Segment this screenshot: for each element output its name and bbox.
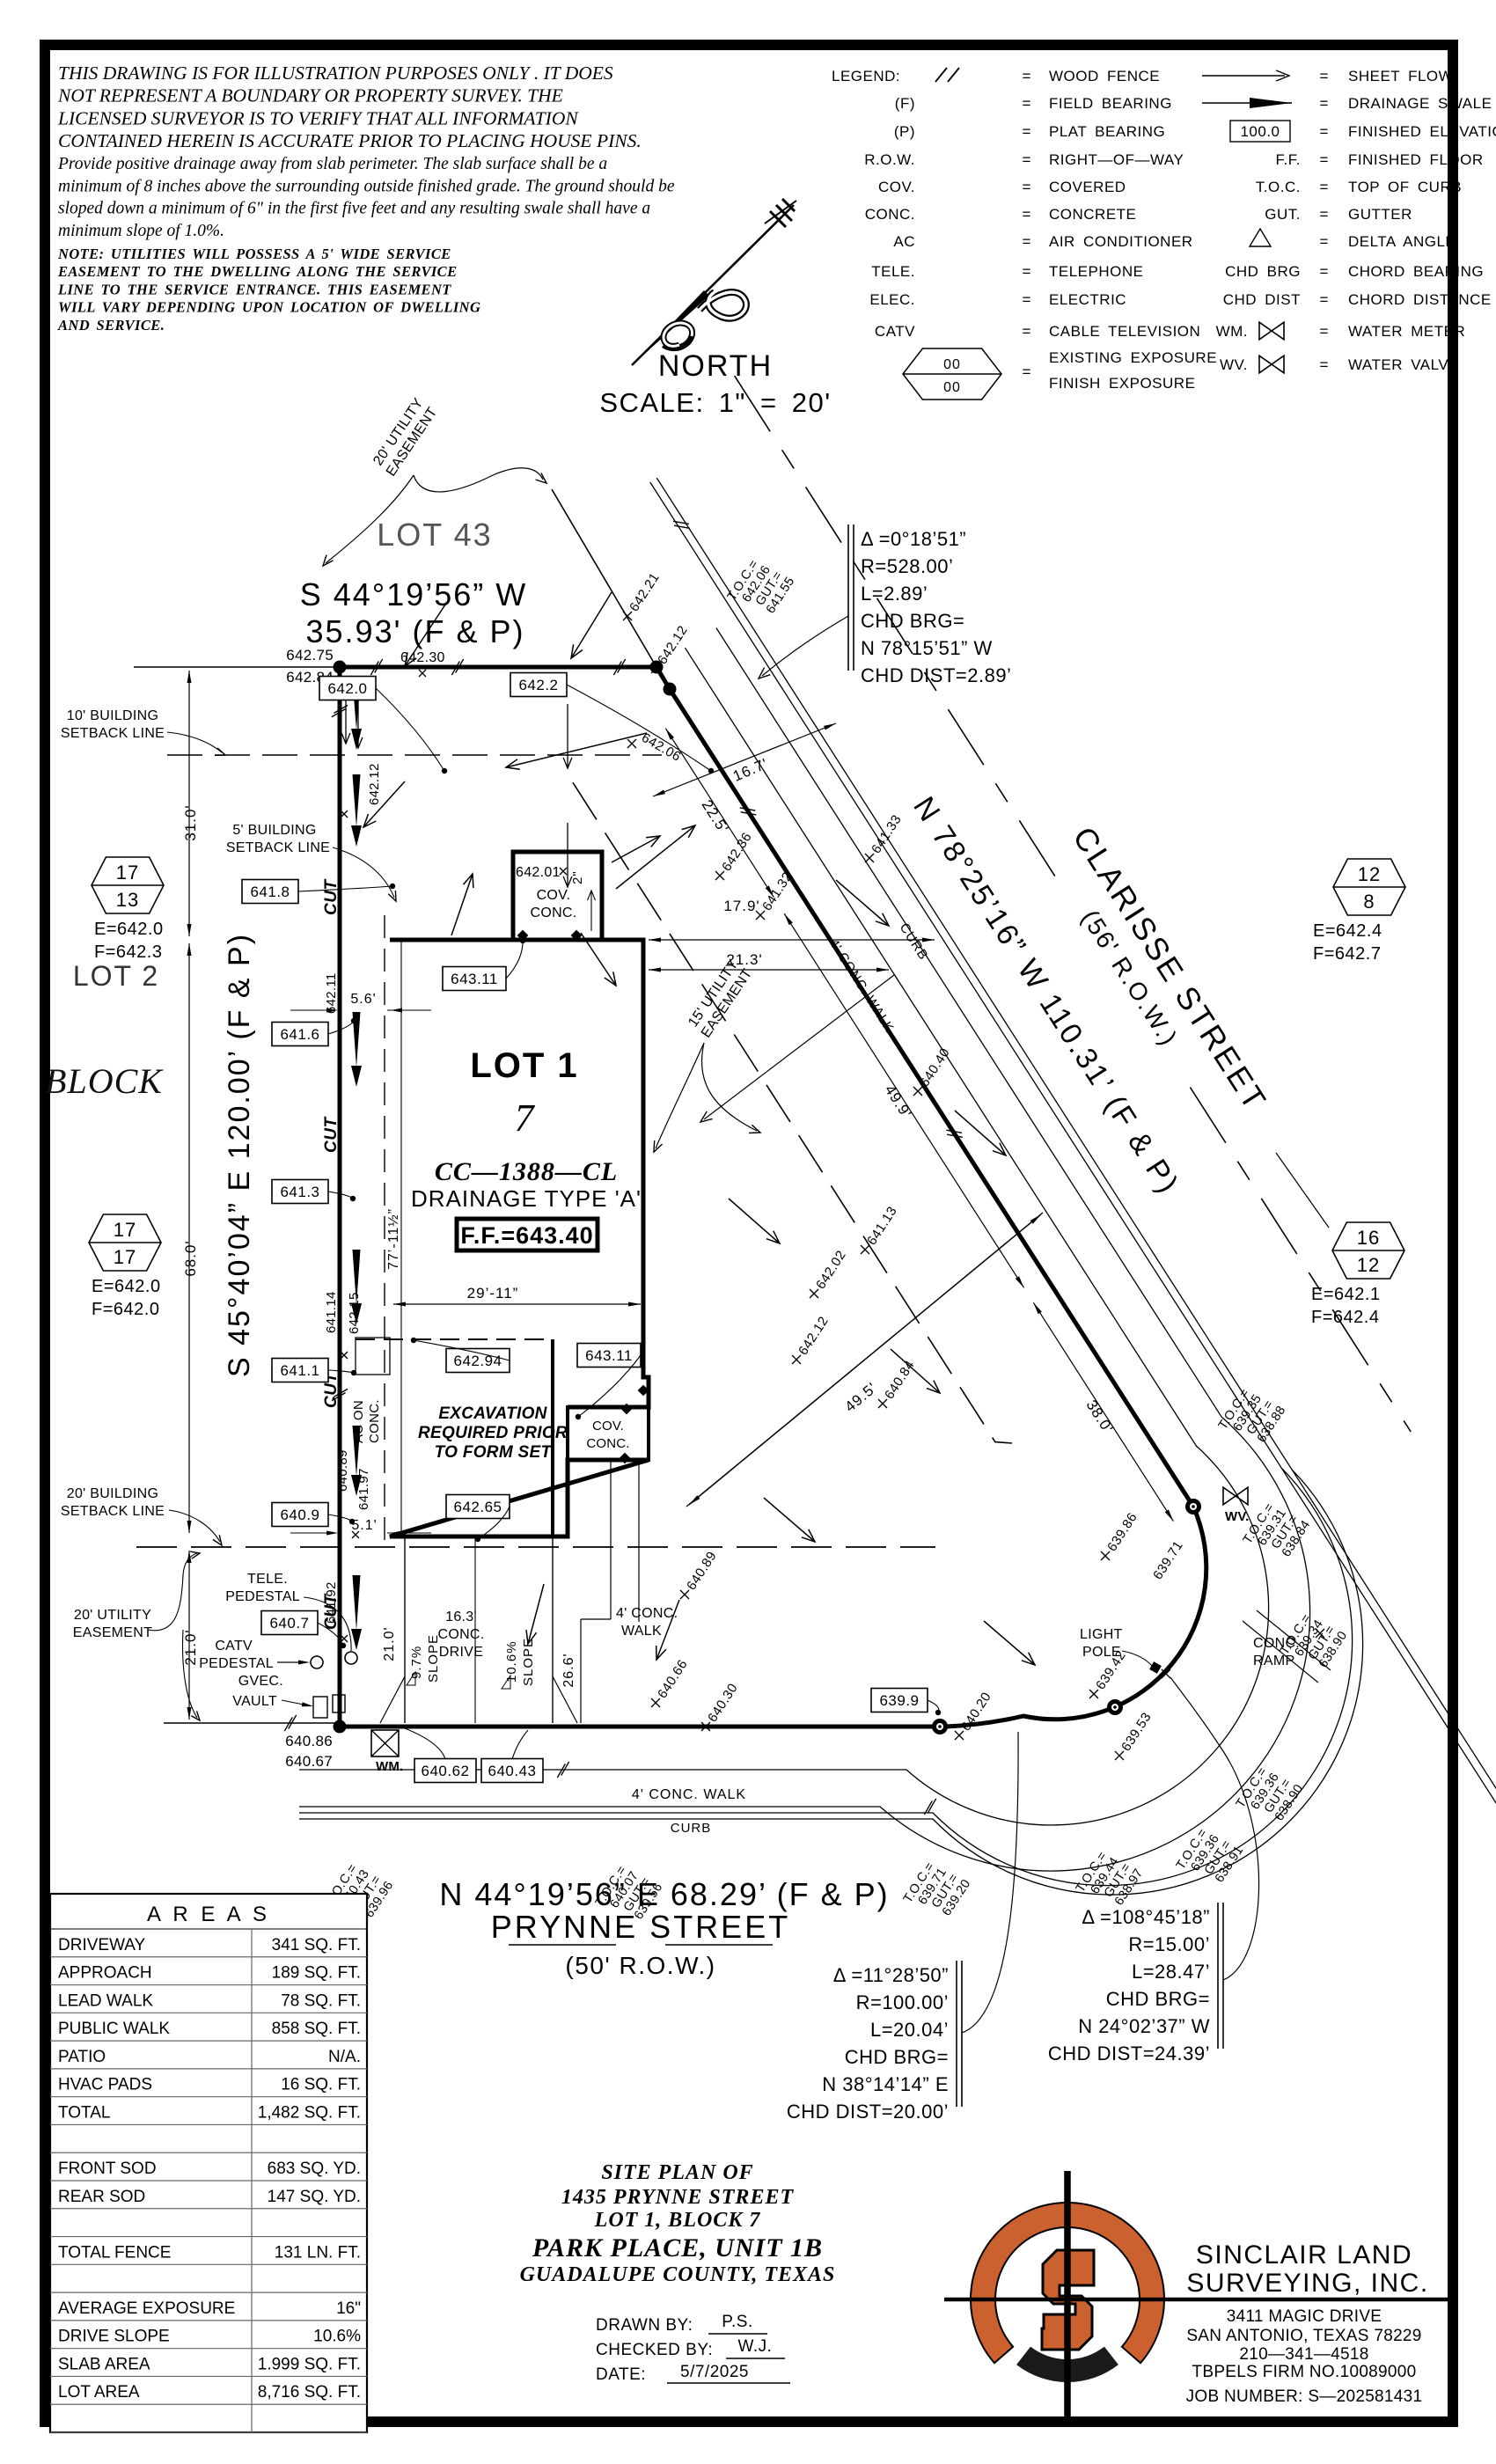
svg-text:7: 7 xyxy=(515,1096,536,1140)
svg-text:5.1': 5.1' xyxy=(351,1518,377,1533)
svg-text:78 SQ. FT.: 78 SQ. FT. xyxy=(281,1991,361,2010)
svg-text:E=642.1: E=642.1 xyxy=(1311,1285,1381,1304)
svg-text:CABLE TELEVISION: CABLE TELEVISION xyxy=(1049,323,1200,340)
svg-text:SLAB AREA: SLAB AREA xyxy=(58,2355,150,2373)
svg-text:=: = xyxy=(1023,95,1032,112)
svg-text:TELE.: TELE. xyxy=(871,263,915,280)
svg-text:PARK PLACE, UNIT 1B: PARK PLACE, UNIT 1B xyxy=(532,2233,823,2262)
svg-text:00: 00 xyxy=(943,357,961,372)
svg-text:LINE TO THE SERVICE ENTRANCE.: LINE TO THE SERVICE ENTRANCE. THIS EASEM… xyxy=(57,281,451,297)
svg-text:WV.: WV. xyxy=(1225,1509,1250,1524)
svg-text:640.43: 640.43 xyxy=(488,1763,537,1779)
svg-text:W.J.: W.J. xyxy=(738,2337,773,2356)
svg-text:GUADALUPE COUNTY, TEXAS: GUADALUPE COUNTY, TEXAS xyxy=(520,2263,836,2286)
svg-text:LICENSED SURVEYOR IS TO VERIFY: LICENSED SURVEYOR IS TO VERIFY THAT ALL … xyxy=(57,107,579,128)
svg-text:AC: AC xyxy=(893,233,915,250)
svg-text:NOTE: UTILITIES WILL POSSESS A: NOTE: UTILITIES WILL POSSESS A 5' WIDE S… xyxy=(57,246,451,262)
svg-text:642.75: 642.75 xyxy=(286,647,334,664)
svg-text:N 78°15’51” W: N 78°15’51” W xyxy=(861,637,993,659)
svg-text:SLOPE: SLOPE xyxy=(521,1638,536,1686)
svg-text:16": 16" xyxy=(336,2299,361,2318)
svg-text:641.8: 641.8 xyxy=(250,884,290,900)
svg-text:DRIVE SLOPE: DRIVE SLOPE xyxy=(58,2328,170,2346)
svg-text:642.2: 642.2 xyxy=(518,677,558,693)
svg-text:GUTTER: GUTTER xyxy=(1348,206,1412,223)
svg-text:COVERED: COVERED xyxy=(1049,179,1126,195)
svg-text:TELE.: TELE. xyxy=(247,1572,288,1587)
svg-text:CC—1388—CL: CC—1388—CL xyxy=(435,1157,618,1186)
svg-text:FIELD BEARING: FIELD BEARING xyxy=(1049,95,1172,112)
svg-text:COV.: COV. xyxy=(878,179,915,195)
svg-text:LIGHT: LIGHT xyxy=(1080,1627,1123,1642)
svg-text:WM.: WM. xyxy=(376,1759,403,1774)
svg-text:WV.: WV. xyxy=(1220,356,1248,373)
svg-text:CATV: CATV xyxy=(875,323,915,340)
svg-text:minimum of 8 inches above the: minimum of 8 inches above the surroundin… xyxy=(58,177,675,195)
svg-text:(50' R.O.W.): (50' R.O.W.) xyxy=(565,1952,715,1979)
svg-text:642.94: 642.94 xyxy=(454,1353,502,1369)
svg-text:REAR SOD: REAR SOD xyxy=(58,2188,145,2206)
svg-text:SCALE: 1" = 20': SCALE: 1" = 20' xyxy=(599,387,831,418)
svg-text:5/7/2025: 5/7/2025 xyxy=(680,2363,749,2381)
svg-text:A R E A S: A R E A S xyxy=(147,1903,270,1926)
svg-text:131 LN. FT.: 131 LN. FT. xyxy=(275,2243,361,2262)
svg-text:189 SQ. FT.: 189 SQ. FT. xyxy=(272,1964,361,1983)
svg-text:31.0': 31.0' xyxy=(182,804,199,840)
svg-text:29’-11”: 29’-11” xyxy=(467,1285,519,1302)
svg-text:640.62: 640.62 xyxy=(422,1763,470,1779)
svg-text:TOTAL FENCE: TOTAL FENCE xyxy=(58,2243,171,2262)
svg-text:N 44°19’56” E 68.29’ (F &: N 44°19’56” E 68.29’ (F & P) xyxy=(439,1876,889,1912)
svg-text:=: = xyxy=(1023,323,1032,340)
svg-text:E=642.4: E=642.4 xyxy=(1313,921,1382,941)
svg-text:1.999 SQ. FT.: 1.999 SQ. FT. xyxy=(258,2355,361,2373)
svg-text:R=100.00’: R=100.00’ xyxy=(856,1991,949,2013)
svg-text:2": 2" xyxy=(570,870,585,884)
svg-text:EASEMENT: EASEMENT xyxy=(73,1625,152,1640)
svg-text:12: 12 xyxy=(1358,863,1381,885)
svg-text:=: = xyxy=(1320,123,1330,140)
svg-text:COV.: COV. xyxy=(537,888,571,903)
svg-text:AIR CONDITIONER: AIR CONDITIONER xyxy=(1049,233,1193,250)
svg-text:CURB: CURB xyxy=(671,1821,712,1836)
svg-text:CHD DIST=20.00’: CHD DIST=20.00’ xyxy=(787,2101,949,2123)
svg-text:16: 16 xyxy=(1357,1227,1380,1249)
svg-text:8,716 SQ. FT.: 8,716 SQ. FT. xyxy=(258,2383,361,2402)
svg-text:642.0: 642.0 xyxy=(327,680,367,697)
svg-text:16.3': 16.3' xyxy=(445,1610,477,1624)
svg-text:9.7%: 9.7% xyxy=(409,1646,424,1679)
svg-text:10.6%: 10.6% xyxy=(313,2328,361,2346)
svg-text:SAN ANTONIO, TEXAS 78229: SAN ANTONIO, TEXAS 78229 xyxy=(1186,2327,1421,2345)
svg-text:WATER VALVE: WATER VALVE xyxy=(1348,356,1459,373)
svg-text:640.67: 640.67 xyxy=(285,1753,333,1770)
svg-text:LOT 2: LOT 2 xyxy=(73,960,159,992)
svg-text:PEDESTAL: PEDESTAL xyxy=(225,1589,300,1604)
svg-text:RAMP: RAMP xyxy=(1253,1654,1294,1668)
svg-text:641.97: 641.97 xyxy=(356,1468,371,1510)
svg-text:CONC.: CONC. xyxy=(865,206,915,223)
svg-text:CONC.: CONC. xyxy=(586,1436,629,1451)
svg-text:20' BUILDING: 20' BUILDING xyxy=(67,1486,158,1501)
svg-text:JOB NUMBER: S—202581431: JOB NUMBER: S—202581431 xyxy=(1186,2387,1423,2406)
svg-text:SHEET FLOW: SHEET FLOW xyxy=(1348,68,1453,84)
svg-text:REQUIRED PRIOR: REQUIRED PRIOR xyxy=(418,1424,568,1442)
svg-text:EASEMENT TO THE DWELLING ALONG: EASEMENT TO THE DWELLING ALONG THE SERVI… xyxy=(57,263,458,280)
svg-text:641.3: 641.3 xyxy=(280,1184,319,1200)
svg-text:CHD BRG=: CHD BRG= xyxy=(1106,1988,1210,2010)
svg-text:(F): (F) xyxy=(895,95,915,112)
svg-text:639.9: 639.9 xyxy=(879,1692,919,1709)
svg-text:CHD BRG: CHD BRG xyxy=(1225,263,1301,280)
svg-text:F=642.0: F=642.0 xyxy=(92,1300,159,1319)
svg-text:642.65: 642.65 xyxy=(454,1499,502,1515)
svg-text:LOT 1: LOT 1 xyxy=(470,1046,578,1085)
svg-text:26.6': 26.6' xyxy=(561,1653,576,1687)
svg-text:642.12: 642.12 xyxy=(367,763,382,805)
svg-text:4' CONC. WALK: 4' CONC. WALK xyxy=(632,1787,746,1802)
svg-text:AND SERVICE.: AND SERVICE. xyxy=(57,317,165,334)
svg-text:=: = xyxy=(1023,179,1032,195)
svg-text:HVAC PADS: HVAC PADS xyxy=(58,2076,152,2094)
svg-text:TELEPHONE: TELEPHONE xyxy=(1049,263,1143,280)
svg-text:1435 PRYNNE STREET: 1435 PRYNNE STREET xyxy=(561,2186,795,2209)
svg-text:SETBACK LINE: SETBACK LINE xyxy=(226,840,330,855)
svg-text:CONC.: CONC. xyxy=(367,1399,382,1443)
svg-text:L=20.04’: L=20.04’ xyxy=(870,2019,949,2041)
svg-text:CONC.: CONC. xyxy=(437,1627,484,1642)
svg-text:=: = xyxy=(1320,233,1330,250)
svg-text:NORTH: NORTH xyxy=(658,349,773,383)
svg-text:=: = xyxy=(1320,95,1330,112)
svg-text:ELEC.: ELEC. xyxy=(869,291,915,308)
svg-text:21.0': 21.0' xyxy=(382,1626,397,1661)
svg-text:=: = xyxy=(1320,151,1330,168)
svg-text:PEDESTAL: PEDESTAL xyxy=(199,1656,274,1671)
svg-text:17: 17 xyxy=(114,1219,136,1241)
svg-text:POLE: POLE xyxy=(1082,1645,1121,1660)
svg-text:CHD DIST=24.39’: CHD DIST=24.39’ xyxy=(1048,2042,1210,2064)
svg-text:CUT: CUT xyxy=(322,1117,341,1153)
svg-text:RIGHT—OF—WAY: RIGHT—OF—WAY xyxy=(1049,151,1184,168)
svg-text:PLAT BEARING: PLAT BEARING xyxy=(1049,123,1165,140)
svg-text:N/A.: N/A. xyxy=(328,2048,361,2066)
svg-text:21.0': 21.0' xyxy=(182,1629,199,1665)
svg-text:13: 13 xyxy=(116,889,139,911)
svg-text:642.11: 642.11 xyxy=(324,972,339,1014)
svg-text:EXCAVATION: EXCAVATION xyxy=(438,1404,547,1423)
svg-text:210—341—4518: 210—341—4518 xyxy=(1239,2345,1368,2364)
svg-text:CHD BRG=: CHD BRG= xyxy=(861,610,964,632)
svg-text:AVERAGE EXPOSURE: AVERAGE EXPOSURE xyxy=(58,2299,235,2318)
svg-text:F=642.4: F=642.4 xyxy=(1311,1308,1379,1327)
svg-text:5.6': 5.6' xyxy=(350,992,376,1007)
svg-text:640.7: 640.7 xyxy=(269,1615,309,1632)
svg-text:3411 MAGIC DRIVE: 3411 MAGIC DRIVE xyxy=(1227,2307,1382,2326)
svg-text:E=642.0: E=642.0 xyxy=(94,920,164,939)
svg-text:FINISHED FLOOR: FINISHED FLOOR xyxy=(1348,151,1484,168)
svg-text:NOT REPRESENT A BOUNDARY OR PR: NOT REPRESENT A BOUNDARY OR PROPERTY SUR… xyxy=(57,85,563,106)
svg-text:L=28.47’: L=28.47’ xyxy=(1132,1961,1210,1983)
svg-text:=: = xyxy=(1023,123,1032,140)
svg-text:DRAWN BY:: DRAWN BY: xyxy=(596,2316,693,2335)
svg-text:17: 17 xyxy=(116,862,139,884)
svg-text:=: = xyxy=(1023,68,1032,84)
svg-text:TO FORM SET: TO FORM SET xyxy=(435,1443,553,1462)
svg-text:LEGEND:: LEGEND: xyxy=(832,68,900,84)
svg-text:642.01: 642.01 xyxy=(516,865,561,880)
svg-text:Δ =108°45’18”: Δ =108°45’18” xyxy=(1082,1906,1210,1928)
svg-text:ELECTRIC: ELECTRIC xyxy=(1049,291,1126,308)
svg-text:APPROACH: APPROACH xyxy=(58,1964,152,1983)
svg-text:L=2.89’: L=2.89’ xyxy=(861,583,928,605)
svg-text:641.6: 641.6 xyxy=(280,1026,319,1043)
svg-text:640.86: 640.86 xyxy=(285,1733,333,1749)
svg-text:CHORD DISTANCE: CHORD DISTANCE xyxy=(1348,291,1492,308)
svg-text:R.O.W.: R.O.W. xyxy=(864,151,915,168)
svg-text:68.0': 68.0' xyxy=(182,1240,199,1276)
svg-text:LOT 43: LOT 43 xyxy=(377,517,492,553)
svg-text:00: 00 xyxy=(943,380,961,395)
svg-text:SINCLAIR LAND: SINCLAIR LAND xyxy=(1196,2240,1412,2270)
svg-text:=: = xyxy=(1320,356,1330,373)
svg-text:WOOD FENCE: WOOD FENCE xyxy=(1049,68,1160,84)
svg-text:683 SQ. YD.: 683 SQ. YD. xyxy=(268,2160,361,2178)
svg-text:TOP OF CURB: TOP OF CURB xyxy=(1348,179,1462,195)
svg-text:COV.: COV. xyxy=(592,1419,624,1434)
svg-text:=: = xyxy=(1023,233,1032,250)
svg-text:CHD DIST=2.89’: CHD DIST=2.89’ xyxy=(861,664,1011,686)
svg-text:PUBLIC WALK: PUBLIC WALK xyxy=(58,2020,170,2038)
svg-text:T.O.C.: T.O.C. xyxy=(1256,179,1301,195)
svg-text:17.9': 17.9' xyxy=(723,898,759,914)
svg-text:CHD BRG=: CHD BRG= xyxy=(845,2046,949,2068)
svg-text:WILL VARY DEPENDING UPON LOCAT: WILL VARY DEPENDING UPON LOCATION OF DWE… xyxy=(58,299,480,316)
svg-text:EXISTING EXPOSURE: EXISTING EXPOSURE xyxy=(1049,349,1217,366)
svg-text:WATER METER: WATER METER xyxy=(1348,323,1465,340)
svg-text:10.6%: 10.6% xyxy=(504,1640,519,1683)
svg-text:640.89: 640.89 xyxy=(335,1449,350,1492)
svg-text:CONCRETE: CONCRETE xyxy=(1049,206,1136,223)
svg-text:sloped down a minimum of 6" in: sloped down a minimum of 6" in the first… xyxy=(58,200,650,218)
svg-text:CONTAINED HEREIN IS ACCURATE P: CONTAINED HEREIN IS ACCURATE PRIOR TO PL… xyxy=(58,130,642,151)
svg-text:GVEC.: GVEC. xyxy=(238,1674,283,1689)
svg-text:CUT: CUT xyxy=(322,879,341,915)
svg-text:858 SQ. FT.: 858 SQ. FT. xyxy=(272,2020,361,2038)
svg-text:FINISH EXPOSURE: FINISH EXPOSURE xyxy=(1049,375,1195,392)
svg-text:641.1: 641.1 xyxy=(280,1362,319,1379)
svg-text:DRIVE: DRIVE xyxy=(439,1645,483,1660)
svg-text:640.9: 640.9 xyxy=(280,1507,319,1523)
svg-text:77’-11½”: 77’-11½” xyxy=(386,1208,401,1270)
svg-text:=: = xyxy=(1023,263,1032,280)
svg-text:DELTA ANGLE: DELTA ANGLE xyxy=(1348,233,1456,250)
svg-text:CHORD BEARING: CHORD BEARING xyxy=(1348,263,1484,280)
svg-text:(P): (P) xyxy=(894,123,915,140)
svg-text:4' CONC.: 4' CONC. xyxy=(616,1606,678,1621)
svg-text:=: = xyxy=(1320,291,1330,308)
svg-text:341 SQ. FT.: 341 SQ. FT. xyxy=(272,1936,361,1954)
svg-text:SETBACK LINE: SETBACK LINE xyxy=(61,1504,165,1519)
svg-text:F.F.: F.F. xyxy=(1276,151,1301,168)
svg-text:147 SQ. YD.: 147 SQ. YD. xyxy=(268,2188,361,2206)
svg-text:641.14: 641.14 xyxy=(324,1291,339,1333)
svg-text:E=642.0: E=642.0 xyxy=(92,1277,161,1296)
svg-text:S 45°40’04” E 120.00’ (F: S 45°40’04” E 120.00’ (F & P) xyxy=(223,933,256,1377)
svg-text:Δ =11°28’50”: Δ =11°28’50” xyxy=(833,1964,949,1986)
svg-text:=: = xyxy=(1320,206,1330,223)
svg-text:Provide positive drainage away: Provide positive drainage away from slab… xyxy=(57,155,607,173)
svg-text:16 SQ. FT.: 16 SQ. FT. xyxy=(281,2076,361,2094)
svg-text:=: = xyxy=(1023,206,1032,223)
svg-text:F.F.=643.40: F.F.=643.40 xyxy=(460,1222,593,1249)
svg-text:17: 17 xyxy=(114,1246,136,1268)
svg-text:CHECKED BY:: CHECKED BY: xyxy=(596,2341,713,2359)
svg-text:DRAINAGE SWALE: DRAINAGE SWALE xyxy=(1348,95,1492,112)
svg-text:SITE PLAN OF: SITE PLAN OF xyxy=(601,2161,753,2184)
svg-text:20' UTILITY: 20' UTILITY xyxy=(74,1608,151,1623)
svg-text:100.0: 100.0 xyxy=(1240,123,1280,140)
svg-text:12: 12 xyxy=(1357,1254,1380,1276)
svg-text:VAULT: VAULT xyxy=(232,1694,277,1709)
svg-text:WM.: WM. xyxy=(1216,323,1248,340)
svg-text:SURVEYING, INC.: SURVEYING, INC. xyxy=(1186,2269,1428,2298)
svg-text:F=642.7: F=642.7 xyxy=(1313,944,1381,964)
svg-text:=: = xyxy=(1320,323,1330,340)
svg-text:THIS DRAWING IS FOR ILLUSTRATI: THIS DRAWING IS FOR ILLUSTRATION PURPOSE… xyxy=(58,62,613,84)
svg-text:R=15.00’: R=15.00’ xyxy=(1128,1933,1210,1955)
svg-text:WALK: WALK xyxy=(621,1624,662,1639)
svg-text:=: = xyxy=(1023,363,1032,380)
svg-text:minimum slope of 1.0%.: minimum slope of 1.0%. xyxy=(58,222,224,240)
svg-text:DRIVEWAY: DRIVEWAY xyxy=(58,1936,146,1954)
svg-text:=: = xyxy=(1320,263,1330,280)
svg-text:TOTAL: TOTAL xyxy=(58,2103,110,2122)
svg-text:SETBACK LINE: SETBACK LINE xyxy=(61,726,165,741)
svg-text:643.11: 643.11 xyxy=(451,971,498,987)
svg-text:LOT AREA: LOT AREA xyxy=(58,2383,140,2402)
svg-text:R=528.00’: R=528.00’ xyxy=(861,555,953,577)
svg-text:1,482 SQ. FT.: 1,482 SQ. FT. xyxy=(258,2103,361,2122)
svg-text:8: 8 xyxy=(1363,891,1375,913)
svg-text:=: = xyxy=(1320,179,1330,195)
svg-text:DATE:: DATE: xyxy=(596,2365,646,2384)
svg-text:PATIO: PATIO xyxy=(58,2048,106,2066)
svg-text:35.93' (F & P): 35.93' (F & P) xyxy=(306,613,525,649)
svg-text:F=642.3: F=642.3 xyxy=(94,942,162,962)
svg-text:=: = xyxy=(1320,68,1330,84)
svg-text:CHD DIST: CHD DIST xyxy=(1223,291,1301,308)
svg-text:=: = xyxy=(1023,151,1032,168)
svg-text:N 38°14’14” E: N 38°14’14” E xyxy=(822,2073,949,2095)
svg-text:DRAINAGE TYPE 'A': DRAINAGE TYPE 'A' xyxy=(411,1185,642,1212)
svg-text:P.S.: P.S. xyxy=(722,2313,752,2331)
svg-text:=: = xyxy=(1023,291,1032,308)
svg-text:10' BUILDING: 10' BUILDING xyxy=(67,708,158,723)
svg-text:LEAD WALK: LEAD WALK xyxy=(58,1991,153,2010)
svg-text:Δ =0°18’51”: Δ =0°18’51” xyxy=(861,528,966,550)
svg-text:CATV: CATV xyxy=(215,1639,253,1654)
svg-text:FINISHED ELEVATION: FINISHED ELEVATION xyxy=(1348,123,1496,140)
svg-text:TBPELS FIRM NO.10089000: TBPELS FIRM NO.10089000 xyxy=(1192,2363,1416,2381)
svg-text:GUT.: GUT. xyxy=(1265,206,1301,223)
svg-text:S 44°19’56” W: S 44°19’56” W xyxy=(300,576,528,612)
svg-text:FRONT SOD: FRONT SOD xyxy=(58,2160,157,2178)
svg-text:5' BUILDING: 5' BUILDING xyxy=(232,823,316,838)
svg-text:643.11: 643.11 xyxy=(585,1347,633,1364)
svg-text:N 24°02’37” W: N 24°02’37” W xyxy=(1078,2015,1210,2037)
svg-text:LOT 1, BLOCK 7: LOT 1, BLOCK 7 xyxy=(594,2209,761,2232)
svg-text:CONC.: CONC. xyxy=(530,906,576,920)
svg-text:BLOCK: BLOCK xyxy=(45,1061,164,1101)
